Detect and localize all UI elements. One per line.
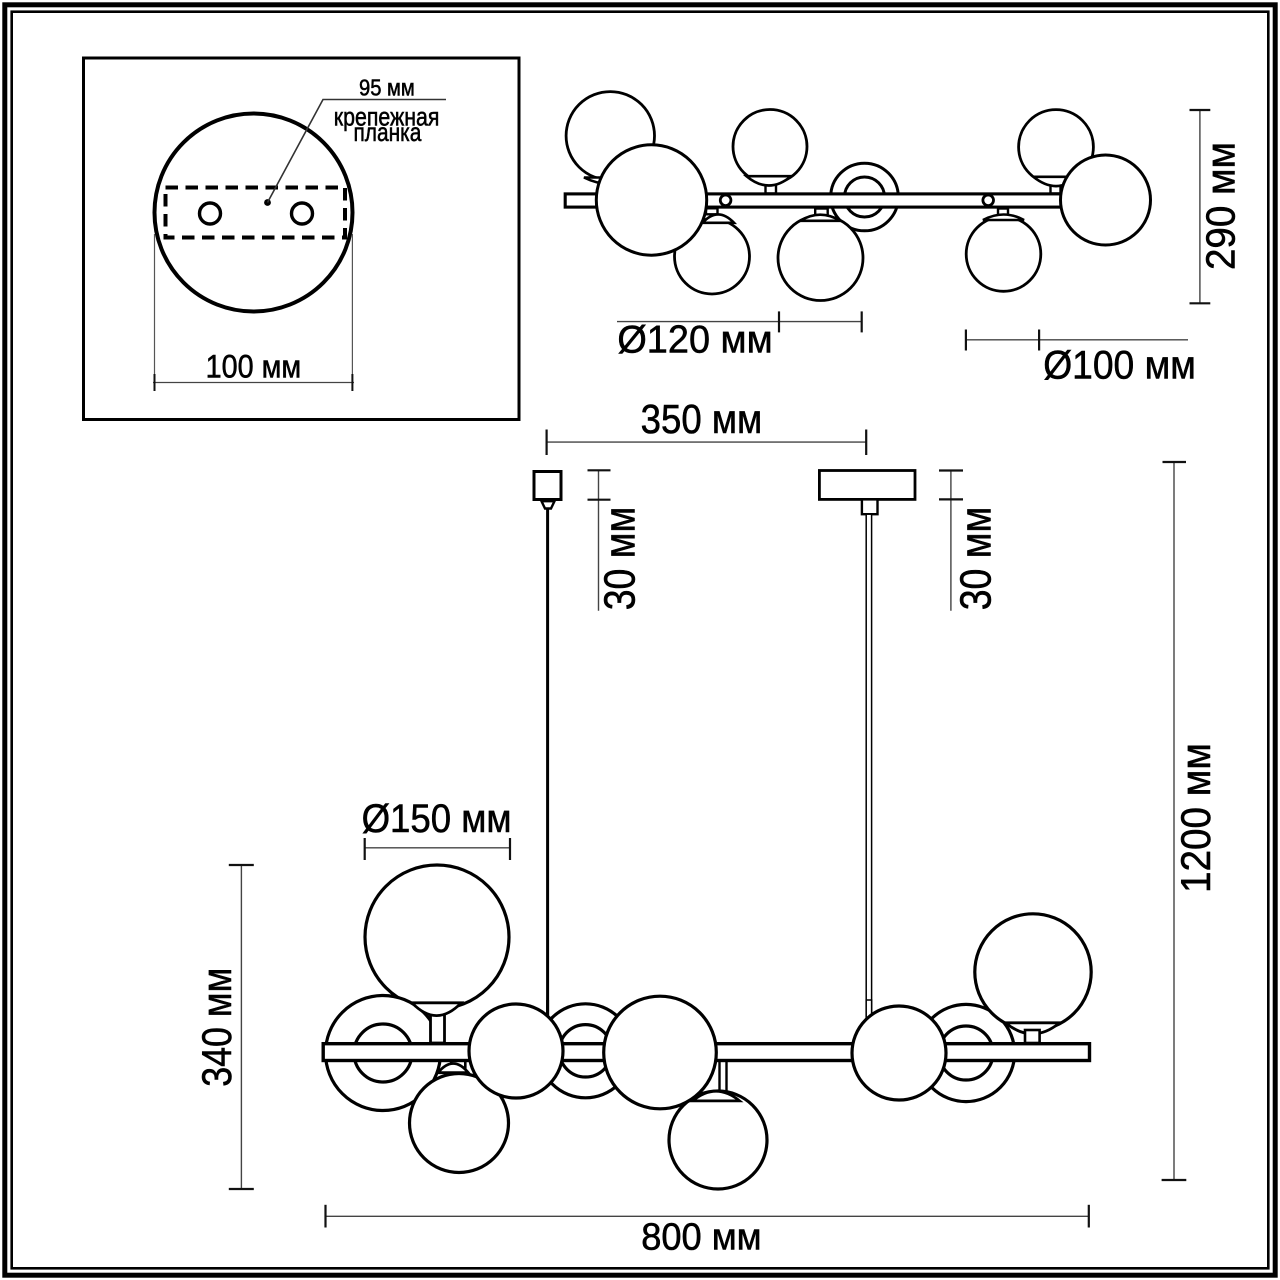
svg-text:планка: планка	[353, 117, 421, 147]
svg-text:290 мм: 290 мм	[1197, 142, 1243, 270]
svg-text:350 мм: 350 мм	[641, 396, 763, 442]
svg-text:1200 мм: 1200 мм	[1172, 743, 1219, 893]
svg-text:Ø100 мм: Ø100 мм	[1043, 344, 1196, 388]
svg-text:30 мм: 30 мм	[953, 507, 1001, 611]
svg-text:340 мм: 340 мм	[193, 968, 240, 1087]
svg-text:Ø150 мм: Ø150 мм	[362, 797, 512, 841]
svg-text:Ø120 мм: Ø120 мм	[617, 318, 772, 361]
svg-text:100 мм: 100 мм	[206, 349, 302, 385]
svg-text:95 мм: 95 мм	[359, 74, 415, 100]
svg-text:30 мм: 30 мм	[597, 507, 645, 611]
svg-text:800 мм: 800 мм	[641, 1216, 761, 1258]
